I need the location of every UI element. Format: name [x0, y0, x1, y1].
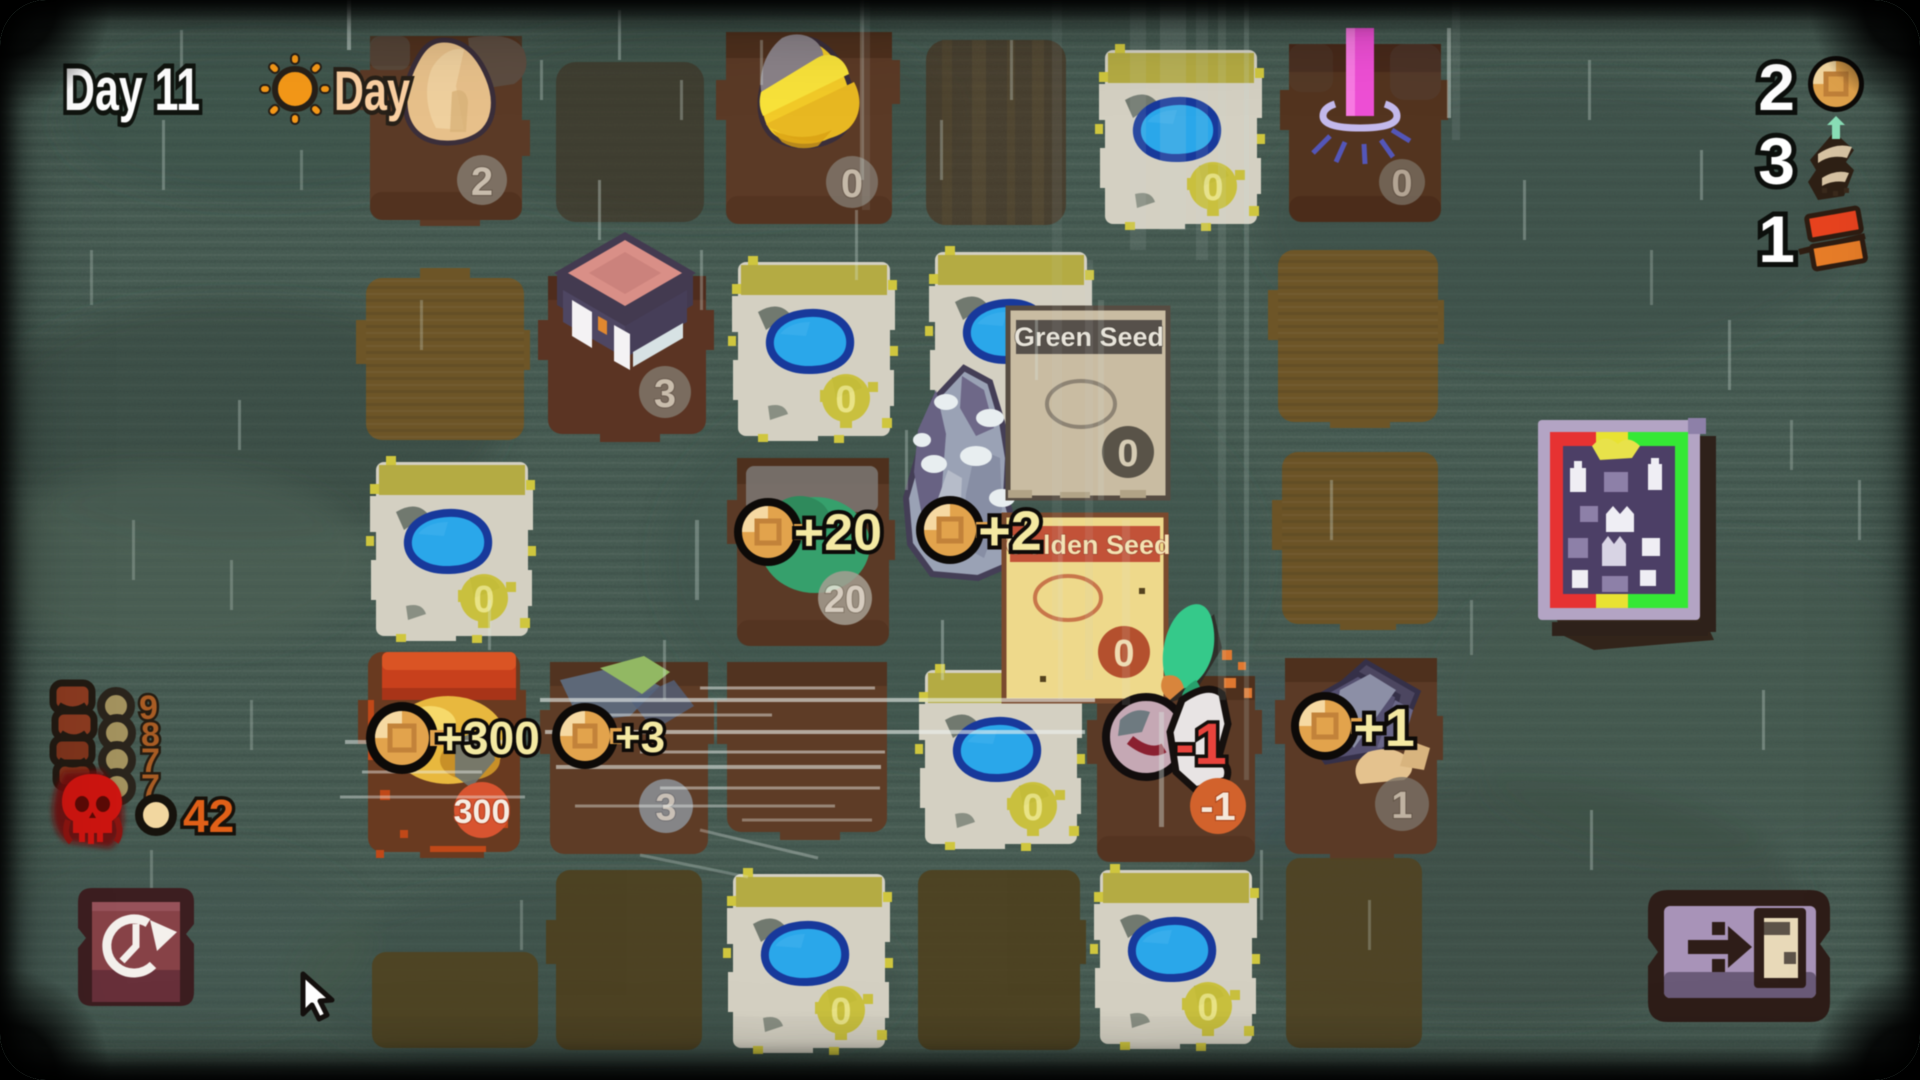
svg-text:+3: +3 [615, 713, 665, 762]
svg-text:+300: +300 [436, 712, 540, 764]
svg-text:-1: -1 [1200, 785, 1236, 829]
svg-text:1: 1 [1758, 202, 1795, 276]
svg-text:Day 11: Day 11 [64, 56, 200, 123]
svg-text:0: 0 [1117, 433, 1138, 475]
svg-text:+1: +1 [1353, 698, 1415, 758]
svg-text:2: 2 [1758, 50, 1795, 124]
svg-text:42: 42 [183, 790, 234, 842]
svg-text:+2: +2 [978, 499, 1042, 562]
svg-text:Day: Day [334, 59, 410, 122]
svg-text:300: 300 [454, 793, 511, 831]
svg-text:0: 0 [841, 162, 863, 206]
svg-text:1: 1 [1391, 785, 1412, 827]
svg-text:+20: +20 [794, 504, 882, 562]
svg-text:2: 2 [471, 160, 493, 204]
svg-text:0: 0 [1391, 163, 1412, 205]
svg-text:3: 3 [655, 787, 676, 829]
svg-text:3: 3 [1758, 124, 1795, 198]
svg-text:20: 20 [824, 579, 866, 621]
svg-text:3: 3 [654, 372, 676, 416]
svg-text:-1: -1 [1175, 712, 1227, 777]
